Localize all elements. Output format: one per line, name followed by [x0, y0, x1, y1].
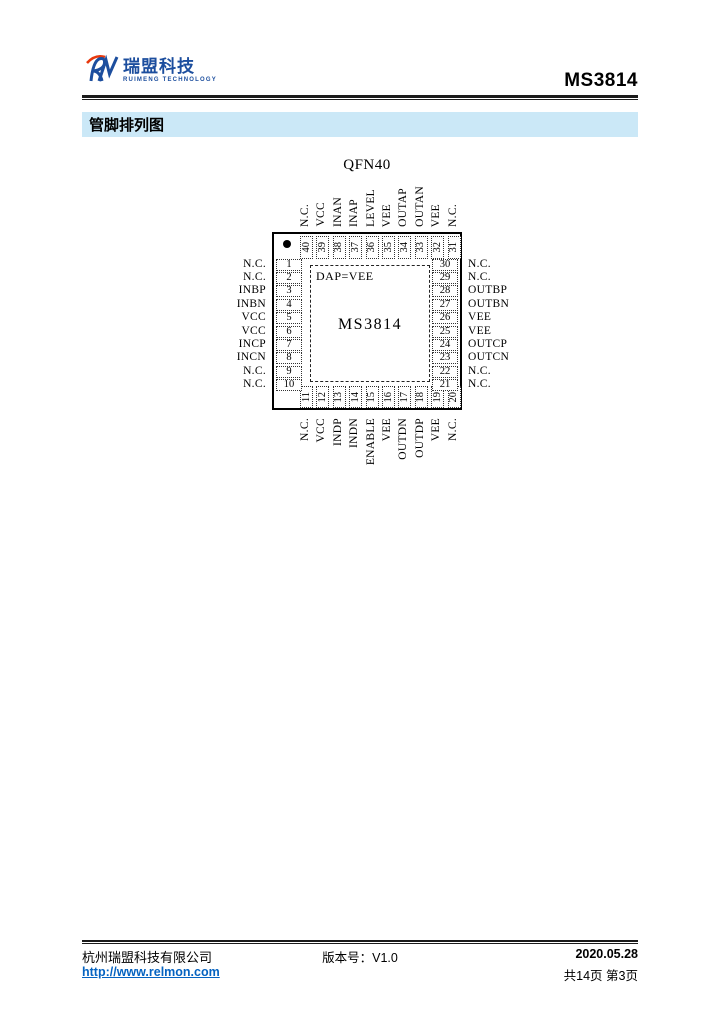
pin-box-6: 6 [276, 326, 302, 338]
logo-company-subtitle: RUIMENG TECHNOLOGY [123, 77, 217, 83]
pin-label-21: N.C. [468, 378, 530, 390]
pin-box-39: 39 [316, 236, 329, 259]
qfn40-package-outline: DAP=VEE MS3814 40N.C.39VCC38INAN37INAP36… [272, 232, 462, 410]
pin-box-22: 22 [432, 366, 458, 378]
pin-box-4: 4 [276, 299, 302, 311]
pin-label-8: INCN [204, 351, 266, 363]
die-paddle-outline: DAP=VEE MS3814 [310, 265, 430, 382]
pin-label-2: N.C. [204, 271, 266, 283]
pin-box-24: 24 [432, 339, 458, 351]
pin-label-33: OUTAN [414, 186, 426, 227]
pin-label-5: VCC [204, 311, 266, 323]
pin-label-31: N.C. [447, 204, 459, 227]
section-title-bar: 管脚排列图 [82, 112, 638, 137]
pin-label-22: N.C. [468, 365, 530, 377]
pin-label-17: OUTDN [397, 418, 409, 460]
pin-label-36: LEVEL [365, 189, 377, 227]
pin-box-23: 23 [432, 352, 458, 364]
pin-box-40: 40 [300, 236, 313, 259]
pin-label-10: N.C. [204, 378, 266, 390]
pin-box-3: 3 [276, 285, 302, 297]
pin-label-24: OUTCP [468, 338, 530, 350]
product-title: MS3814 [564, 70, 638, 92]
pin-label-20: N.C. [447, 418, 459, 441]
pin-label-35: VEE [381, 204, 393, 227]
pin-label-18: OUTDP [414, 418, 426, 458]
pin-box-26: 26 [432, 312, 458, 324]
pin-label-39: VCC [315, 202, 327, 227]
footer-divider [82, 940, 638, 944]
pin-label-1: N.C. [204, 258, 266, 270]
pin-box-32: 32 [431, 236, 444, 259]
chip-name: MS3814 [311, 316, 429, 334]
pin-label-7: INCP [204, 338, 266, 350]
pin1-indicator-dot [283, 240, 291, 248]
pin-box-37: 37 [349, 236, 362, 259]
pin-label-30: N.C. [468, 258, 530, 270]
pin-label-38: INAN [332, 197, 344, 227]
pin-label-11: N.C. [299, 418, 311, 441]
pin-box-16: 16 [382, 386, 395, 408]
pin-label-13: INDP [332, 418, 344, 446]
pin-box-9: 9 [276, 366, 302, 378]
pin-label-12: VCC [315, 418, 327, 443]
pin-box-38: 38 [333, 236, 346, 259]
page-header: 瑞盟科技 RUIMENG TECHNOLOGY MS3814 [82, 50, 638, 94]
pin-label-34: OUTAP [397, 188, 409, 227]
logo-company-name: 瑞盟科技 [123, 58, 217, 75]
pin-box-33: 33 [415, 236, 428, 259]
dap-note: DAP=VEE [316, 269, 374, 284]
pin-box-2: 2 [276, 272, 302, 284]
footer-page-number: 共14页 第3页 [564, 965, 638, 984]
pin-box-1: 1 [276, 259, 302, 271]
pin-label-16: VEE [381, 418, 393, 441]
pin-label-28: OUTBP [468, 284, 530, 296]
pin-label-3: INBP [204, 284, 266, 296]
pin-box-7: 7 [276, 339, 302, 351]
pin-box-27: 27 [432, 299, 458, 311]
pin-box-21: 21 [432, 379, 458, 391]
pin-box-34: 34 [398, 236, 411, 259]
pin-box-14: 14 [349, 386, 362, 408]
footer-website-link[interactable]: http://www.relmon.com [82, 965, 220, 979]
pin-box-5: 5 [276, 312, 302, 324]
pin-box-35: 35 [382, 236, 395, 259]
pin-box-12: 12 [316, 386, 329, 408]
pin-label-14: INDN [348, 418, 360, 448]
logo-text: 瑞盟科技 RUIMENG TECHNOLOGY [123, 58, 217, 83]
pin-label-32: VEE [430, 204, 442, 227]
header-divider [82, 95, 638, 100]
pin-label-6: VCC [204, 325, 266, 337]
page-footer: 杭州瑞盟科技有限公司 版本号：V1.0 2020.05.28 http://ww… [82, 946, 638, 982]
pin-box-17: 17 [398, 386, 411, 408]
pin-label-29: N.C. [468, 271, 530, 283]
pin-label-19: VEE [430, 418, 442, 441]
pin-box-30: 30 [432, 259, 458, 271]
pin-label-9: N.C. [204, 365, 266, 377]
pin-label-25: VEE [468, 325, 530, 337]
logo-mark-icon [84, 52, 120, 86]
footer-date: 2020.05.28 [575, 947, 638, 961]
pin-box-29: 29 [432, 272, 458, 284]
pin-box-13: 13 [333, 386, 346, 408]
pin-box-36: 36 [366, 236, 379, 259]
package-type-label: QFN40 [272, 157, 462, 174]
pin-box-25: 25 [432, 326, 458, 338]
pin-box-18: 18 [415, 386, 428, 408]
pin-box-8: 8 [276, 352, 302, 364]
pin-label-15: ENABLE [365, 418, 377, 465]
pin-label-26: VEE [468, 311, 530, 323]
datasheet-page: 瑞盟科技 RUIMENG TECHNOLOGY MS3814 管脚排列图 QFN… [0, 0, 724, 1024]
pin-label-27: OUTBN [468, 298, 530, 310]
pin-label-23: OUTCN [468, 351, 530, 363]
pin-label-4: INBN [204, 298, 266, 310]
pin-box-15: 15 [366, 386, 379, 408]
pin-label-40: N.C. [299, 204, 311, 227]
pin-box-31: 31 [448, 236, 461, 259]
section-title: 管脚排列图 [89, 114, 164, 135]
pin-box-10: 10 [276, 379, 302, 391]
pin-box-28: 28 [432, 285, 458, 297]
company-logo: 瑞盟科技 RUIMENG TECHNOLOGY [84, 52, 217, 86]
pin-label-37: INAP [348, 199, 360, 227]
